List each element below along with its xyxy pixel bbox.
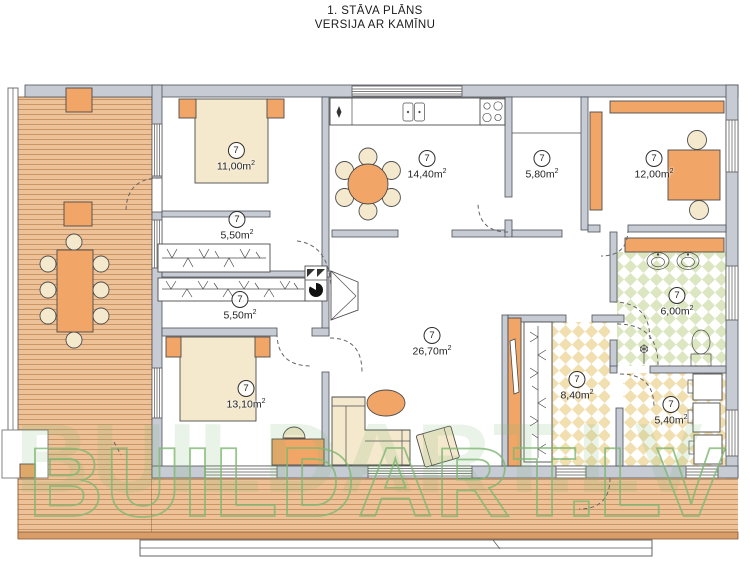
room-label-hallway: 7 8,40m2	[560, 371, 593, 402]
office-desk	[668, 150, 720, 200]
room-label-closet-2: 7 5,50m2	[223, 291, 256, 322]
kitchen-counter	[330, 98, 505, 125]
room-label-closet-1: 7 5,50m2	[220, 211, 253, 242]
closet-rail-1	[158, 244, 270, 272]
room-number-badge: 7	[669, 287, 686, 304]
room-area: 5,40m2	[654, 414, 687, 427]
room-number-badge: 7	[663, 396, 680, 413]
room-label-living-room: 7 26,70m2	[413, 327, 452, 358]
deck-steps	[140, 540, 652, 556]
window-top-kitchen	[352, 86, 462, 96]
room-number-badge: 7	[419, 150, 436, 167]
room-label-kitchen: 7 14,40m2	[408, 150, 447, 181]
room-number-badge: 7	[569, 371, 586, 388]
room-number-badge: 7	[534, 150, 551, 167]
room-area: 5,50m2	[223, 309, 256, 322]
room-number-badge: 7	[424, 327, 441, 344]
watermark: BUILDART.LV BUILDART.LV	[15, 403, 728, 537]
room-area: 12,00m2	[635, 168, 674, 181]
office-chair-2	[690, 201, 709, 220]
office-wardrobe-left	[590, 112, 602, 210]
office-wardrobe-top	[610, 101, 724, 113]
window-left-1	[152, 124, 162, 176]
room-area: 5,80m2	[525, 168, 558, 181]
room-number-badge: 7	[238, 380, 255, 397]
room-area: 6,00m2	[660, 305, 693, 318]
room-area: 13,10m2	[227, 398, 266, 411]
room-area: 8,40m2	[560, 389, 593, 402]
room-label-pantry: 7 5,80m2	[525, 150, 558, 181]
office-chair-1	[688, 131, 707, 150]
room-area: 14,40m2	[408, 168, 447, 181]
room-area: 11,00m2	[217, 160, 255, 173]
room-label-bedroom-2: 7 13,10m2	[227, 380, 266, 411]
room-area: 5,50m2	[220, 229, 253, 242]
room-area: 26,70m2	[413, 345, 452, 358]
room-number-badge: 7	[228, 142, 245, 159]
room-number-badge: 7	[646, 150, 663, 167]
room-label-bedroom-1: 7 11,00m2	[217, 142, 255, 173]
deck-door-opening	[152, 178, 162, 212]
room-number-badge: 7	[232, 291, 249, 308]
room-label-bathroom: 7 6,00m2	[660, 287, 693, 318]
floor-plan-drawing: BUILDART.LV BUILDART.LV	[0, 0, 750, 563]
room-number-badge: 7	[229, 211, 246, 228]
room-label-office: 7 12,00m2	[635, 150, 674, 181]
washer-1	[693, 374, 722, 400]
window-right-2	[726, 266, 738, 320]
window-right-1	[726, 120, 738, 172]
watermark-text: BUILDART.LV	[28, 427, 728, 537]
room-label-laundry: 7 5,40m2	[654, 396, 687, 427]
floor-plan-page: 1. STĀVA PLĀNS VERSIJA AR KAMĪNU	[0, 0, 750, 563]
